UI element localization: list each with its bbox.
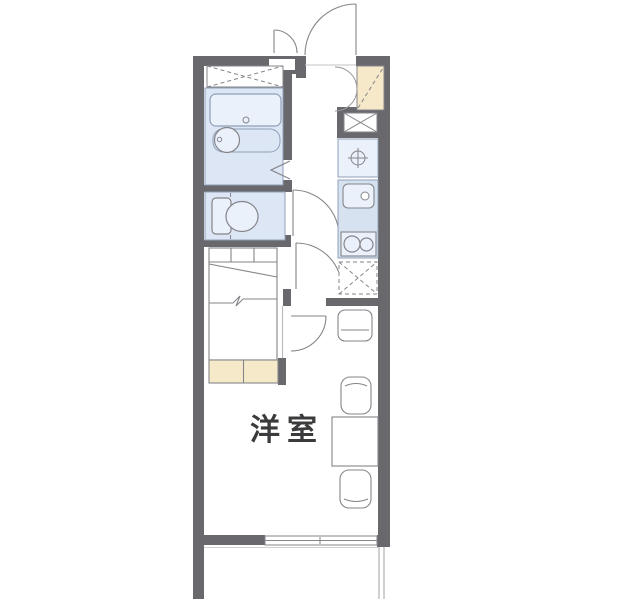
wall-toilet-bottom (204, 240, 291, 247)
bed-outline (209, 248, 277, 360)
washbasin (215, 128, 240, 153)
dining-set (332, 310, 378, 508)
gas-stove (341, 232, 376, 256)
storage-closet (207, 66, 283, 87)
wall-right (378, 66, 390, 547)
toilet-door (293, 190, 339, 236)
bathroom (205, 88, 290, 185)
window-balcony (204, 536, 384, 599)
room-label: 洋室 (250, 413, 324, 448)
toilet-bowl (226, 202, 258, 232)
wall-bath-bottom (204, 185, 292, 192)
floor-plan: 洋室 (0, 0, 640, 599)
wall-bottom-left (204, 535, 265, 545)
entrance-door (305, 4, 356, 55)
bathtub (210, 94, 281, 126)
wall-entrance-stub (296, 56, 306, 78)
refrigerator-space (339, 262, 377, 294)
wall-bottom-right (377, 535, 390, 547)
wall-bed-foot-stub (278, 358, 286, 385)
interior-door (296, 243, 342, 289)
kitchen (338, 139, 378, 294)
wall-left (193, 56, 204, 599)
wall-corridor-bottom (326, 298, 390, 306)
room-door (291, 316, 326, 351)
toilet-room (205, 192, 285, 240)
sink-drain (361, 192, 369, 200)
bed (209, 248, 283, 383)
washing-machine-space (344, 113, 377, 132)
wall-divider-chunk-2 (283, 289, 291, 306)
shoe-cabinet-doors (335, 67, 357, 111)
wall-top-right (356, 56, 390, 66)
stool (338, 310, 372, 341)
service-door (274, 30, 297, 53)
floor-plan-page: 洋室 (0, 0, 640, 599)
chair-top (341, 377, 371, 414)
balcony-railing (379, 547, 384, 599)
wall-bath-right-upper (283, 66, 292, 160)
interior-doors (291, 190, 342, 351)
dining-table (332, 417, 378, 466)
chair-bottom (340, 470, 371, 508)
